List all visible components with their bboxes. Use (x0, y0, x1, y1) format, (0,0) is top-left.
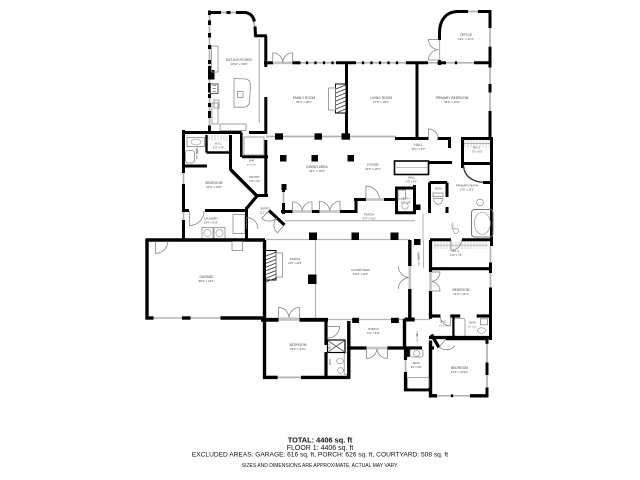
svg-text:7'2" x 6'3": 7'2" x 6'3" (472, 150, 483, 153)
svg-text:W.I.C.: W.I.C. (473, 146, 481, 150)
svg-text:EXCLUDED AREAS: GARAGE: 616 sq: EXCLUDED AREAS: GARAGE: 616 sq. ft, PORC… (192, 451, 448, 458)
svg-text:LAUNDRY: LAUNDRY (204, 217, 218, 221)
svg-text:4'5" x 8'2": 4'5" x 8'2" (406, 180, 417, 183)
svg-text:13'11" x 30'3": 13'11" x 30'3" (230, 62, 247, 66)
svg-text:7'11" x 6'9": 7'11" x 6'9" (417, 332, 419, 342)
svg-text:14'6" x 11'3": 14'6" x 11'3" (453, 292, 469, 296)
svg-text:9'6" x 6'2": 9'6" x 6'2" (468, 326, 477, 328)
svg-text:3'9" x 5'9": 3'9" x 5'9" (247, 164, 257, 166)
svg-text:15'6" x 14'5": 15'6" x 14'5" (206, 185, 222, 189)
svg-text:TOTAL: 4406 sq. ft: TOTAL: 4406 sq. ft (288, 436, 353, 445)
svg-text:25'2" x 18'1": 25'2" x 18'1" (296, 100, 312, 104)
svg-text:5'3" x 5'3": 5'3" x 5'3" (439, 325, 448, 327)
svg-text:5'11" x 4'9": 5'11" x 4'9" (213, 147, 224, 149)
svg-text:ENTRY: ENTRY (261, 207, 271, 211)
svg-text:W.I.C.: W.I.C. (330, 343, 332, 350)
svg-text:W.I.C.: W.I.C. (452, 249, 460, 253)
svg-text:W.I.C.: W.I.C. (215, 142, 223, 146)
svg-text:22'1" x 16'3": 22'1" x 16'3" (309, 169, 325, 173)
svg-text:5'6" x 8'2": 5'6" x 8'2" (197, 149, 199, 159)
svg-text:PORCH: PORCH (364, 213, 374, 217)
svg-text:PANTRY: PANTRY (249, 175, 260, 179)
svg-text:17'5" x 18'1": 17'5" x 18'1" (373, 100, 389, 104)
svg-text:COURTYARD: COURTYARD (351, 268, 371, 272)
svg-text:BATH: BATH (413, 361, 420, 365)
svg-text:W.I.C.: W.I.C. (440, 321, 447, 324)
svg-text:SIZES AND DIMENSIONS ARE APPRO: SIZES AND DIMENSIONS ARE APPROXIMATE, AC… (242, 463, 399, 469)
svg-text:8'4" x 9'11": 8'4" x 9'11" (411, 367, 422, 369)
svg-text:PRIMARY BATH: PRIMARY BATH (456, 184, 478, 188)
svg-text:12'1" x 12'4": 12'1" x 12'4" (458, 37, 474, 41)
svg-text:BATH: BATH (451, 223, 455, 230)
svg-text:BATH: BATH (403, 197, 410, 201)
svg-text:37'4" x 9'11": 37'4" x 9'11" (362, 217, 376, 220)
svg-text:15'4" x 14'1": 15'4" x 14'1" (290, 347, 306, 351)
svg-text:14'2" x 14'10": 14'2" x 14'10" (451, 370, 468, 374)
svg-text:13'5" x 16'1": 13'5" x 16'1" (460, 187, 474, 191)
svg-text:12'8" x 20'6": 12'8" x 20'6" (288, 262, 302, 265)
svg-text:18'1" x 16'0": 18'1" x 16'0" (444, 100, 460, 104)
svg-text:BATH: BATH (435, 187, 442, 191)
svg-text:PORCH: PORCH (290, 257, 300, 261)
svg-text:14'6" x 7'6": 14'6" x 7'6" (450, 254, 462, 257)
svg-text:PORCH: PORCH (368, 327, 378, 331)
svg-text:BATH: BATH (469, 322, 476, 325)
svg-text:3'10" x 18'8": 3'10" x 18'8" (419, 254, 421, 266)
svg-text:BATH: BATH (329, 359, 332, 365)
svg-text:24'10" x 20'6": 24'10" x 20'6" (353, 272, 369, 276)
svg-text:SHR: SHR (249, 159, 255, 163)
svg-text:13'5" x 15'1": 13'5" x 15'1" (365, 167, 381, 171)
svg-text:7'10" x 6'2": 7'10" x 6'2" (249, 181, 261, 183)
svg-text:14'1" x 8'11": 14'1" x 8'11" (367, 332, 381, 335)
svg-text:HALL: HALL (408, 176, 416, 180)
svg-text:30'0" x 22'1": 30'0" x 22'1" (199, 279, 215, 283)
svg-text:15'1" x 8'7": 15'1" x 8'7" (411, 147, 425, 151)
svg-text:10'4" x 8'10": 10'4" x 8'10" (204, 220, 218, 224)
